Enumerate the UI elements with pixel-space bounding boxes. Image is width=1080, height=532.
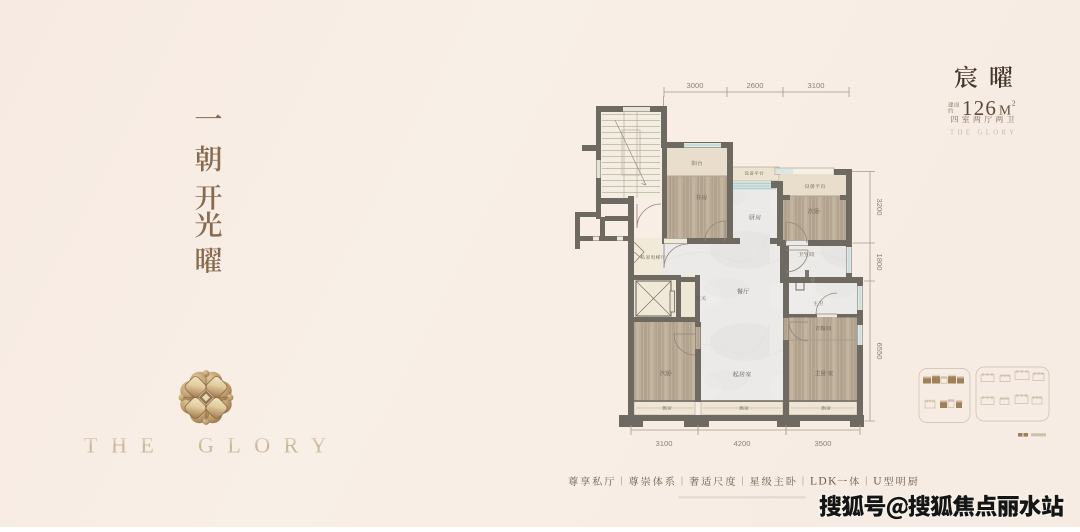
svg-text:3100: 3100 <box>656 439 673 448</box>
svg-text:3000: 3000 <box>687 81 704 90</box>
svg-text:3500: 3500 <box>815 439 832 448</box>
svg-text:6550: 6550 <box>875 343 884 360</box>
svg-text:1800: 1800 <box>875 254 884 271</box>
svg-text:3200: 3200 <box>875 199 884 216</box>
svg-text:126: 126 <box>962 96 997 120</box>
svg-text:THE GLORY: THE GLORY <box>84 433 340 458</box>
svg-text:THE GLORY: THE GLORY <box>950 130 1017 137</box>
svg-text:M: M <box>999 103 1011 118</box>
svg-text:2: 2 <box>1012 100 1016 108</box>
svg-text:3100: 3100 <box>808 81 825 90</box>
svg-text:4200: 4200 <box>734 439 751 448</box>
svg-text:U: U <box>873 476 882 488</box>
svg-text:2600: 2600 <box>747 81 764 90</box>
svg-text:LDK: LDK <box>810 476 838 488</box>
